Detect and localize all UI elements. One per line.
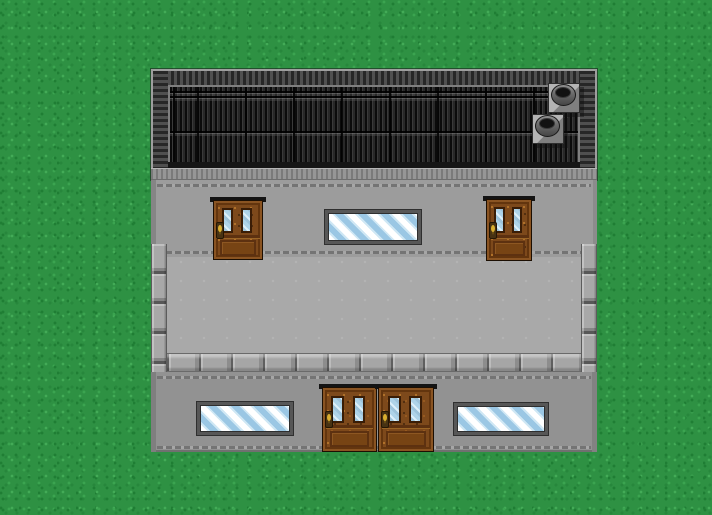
window-lower-right (454, 403, 548, 435)
door-knob (216, 222, 224, 239)
window-lower-left (197, 402, 293, 435)
chimney-opening (539, 118, 555, 129)
door-window-pane (409, 396, 422, 423)
door-knob (381, 411, 389, 428)
stone-border-right (581, 244, 597, 372)
chimney-vent-upper (548, 83, 580, 113)
door-knob (489, 222, 497, 239)
door-window-pane (241, 208, 253, 233)
wall-trim-line (157, 376, 591, 379)
game-map-canvas[interactable] (0, 0, 712, 515)
door-window-pane (331, 396, 344, 423)
door-body (486, 199, 532, 261)
stone-border-bottom (167, 353, 581, 372)
door-window-pane (512, 207, 523, 233)
door-panel (220, 240, 256, 255)
door-panel (386, 431, 426, 447)
door-window-pane (388, 396, 401, 423)
roof-frame-top (153, 71, 595, 86)
door-body (322, 387, 377, 452)
door-panel (330, 431, 369, 447)
wall-trim-line (157, 184, 591, 187)
door-body (378, 387, 434, 452)
stone-border-left (151, 244, 167, 372)
roof-gutter (151, 168, 597, 180)
chimney-vent-lower (532, 114, 564, 144)
chimney-pot (535, 115, 560, 137)
door-window-pane (353, 396, 366, 423)
roof-tiles (170, 87, 578, 162)
door-knob (325, 411, 333, 428)
chimney-pot (551, 84, 576, 106)
window-upper (325, 210, 421, 244)
door-panel (493, 241, 526, 257)
roof (151, 69, 597, 180)
door-body (213, 200, 263, 260)
chimney-opening (555, 87, 571, 98)
door-upper-left[interactable] (213, 197, 263, 260)
roof-frame-left (153, 71, 168, 168)
door-lower-double-right[interactable] (378, 384, 434, 452)
building (151, 69, 597, 452)
door-lower-double-left[interactable] (322, 384, 377, 452)
roof-frame-right (580, 71, 595, 168)
door-upper-right[interactable] (486, 196, 532, 261)
